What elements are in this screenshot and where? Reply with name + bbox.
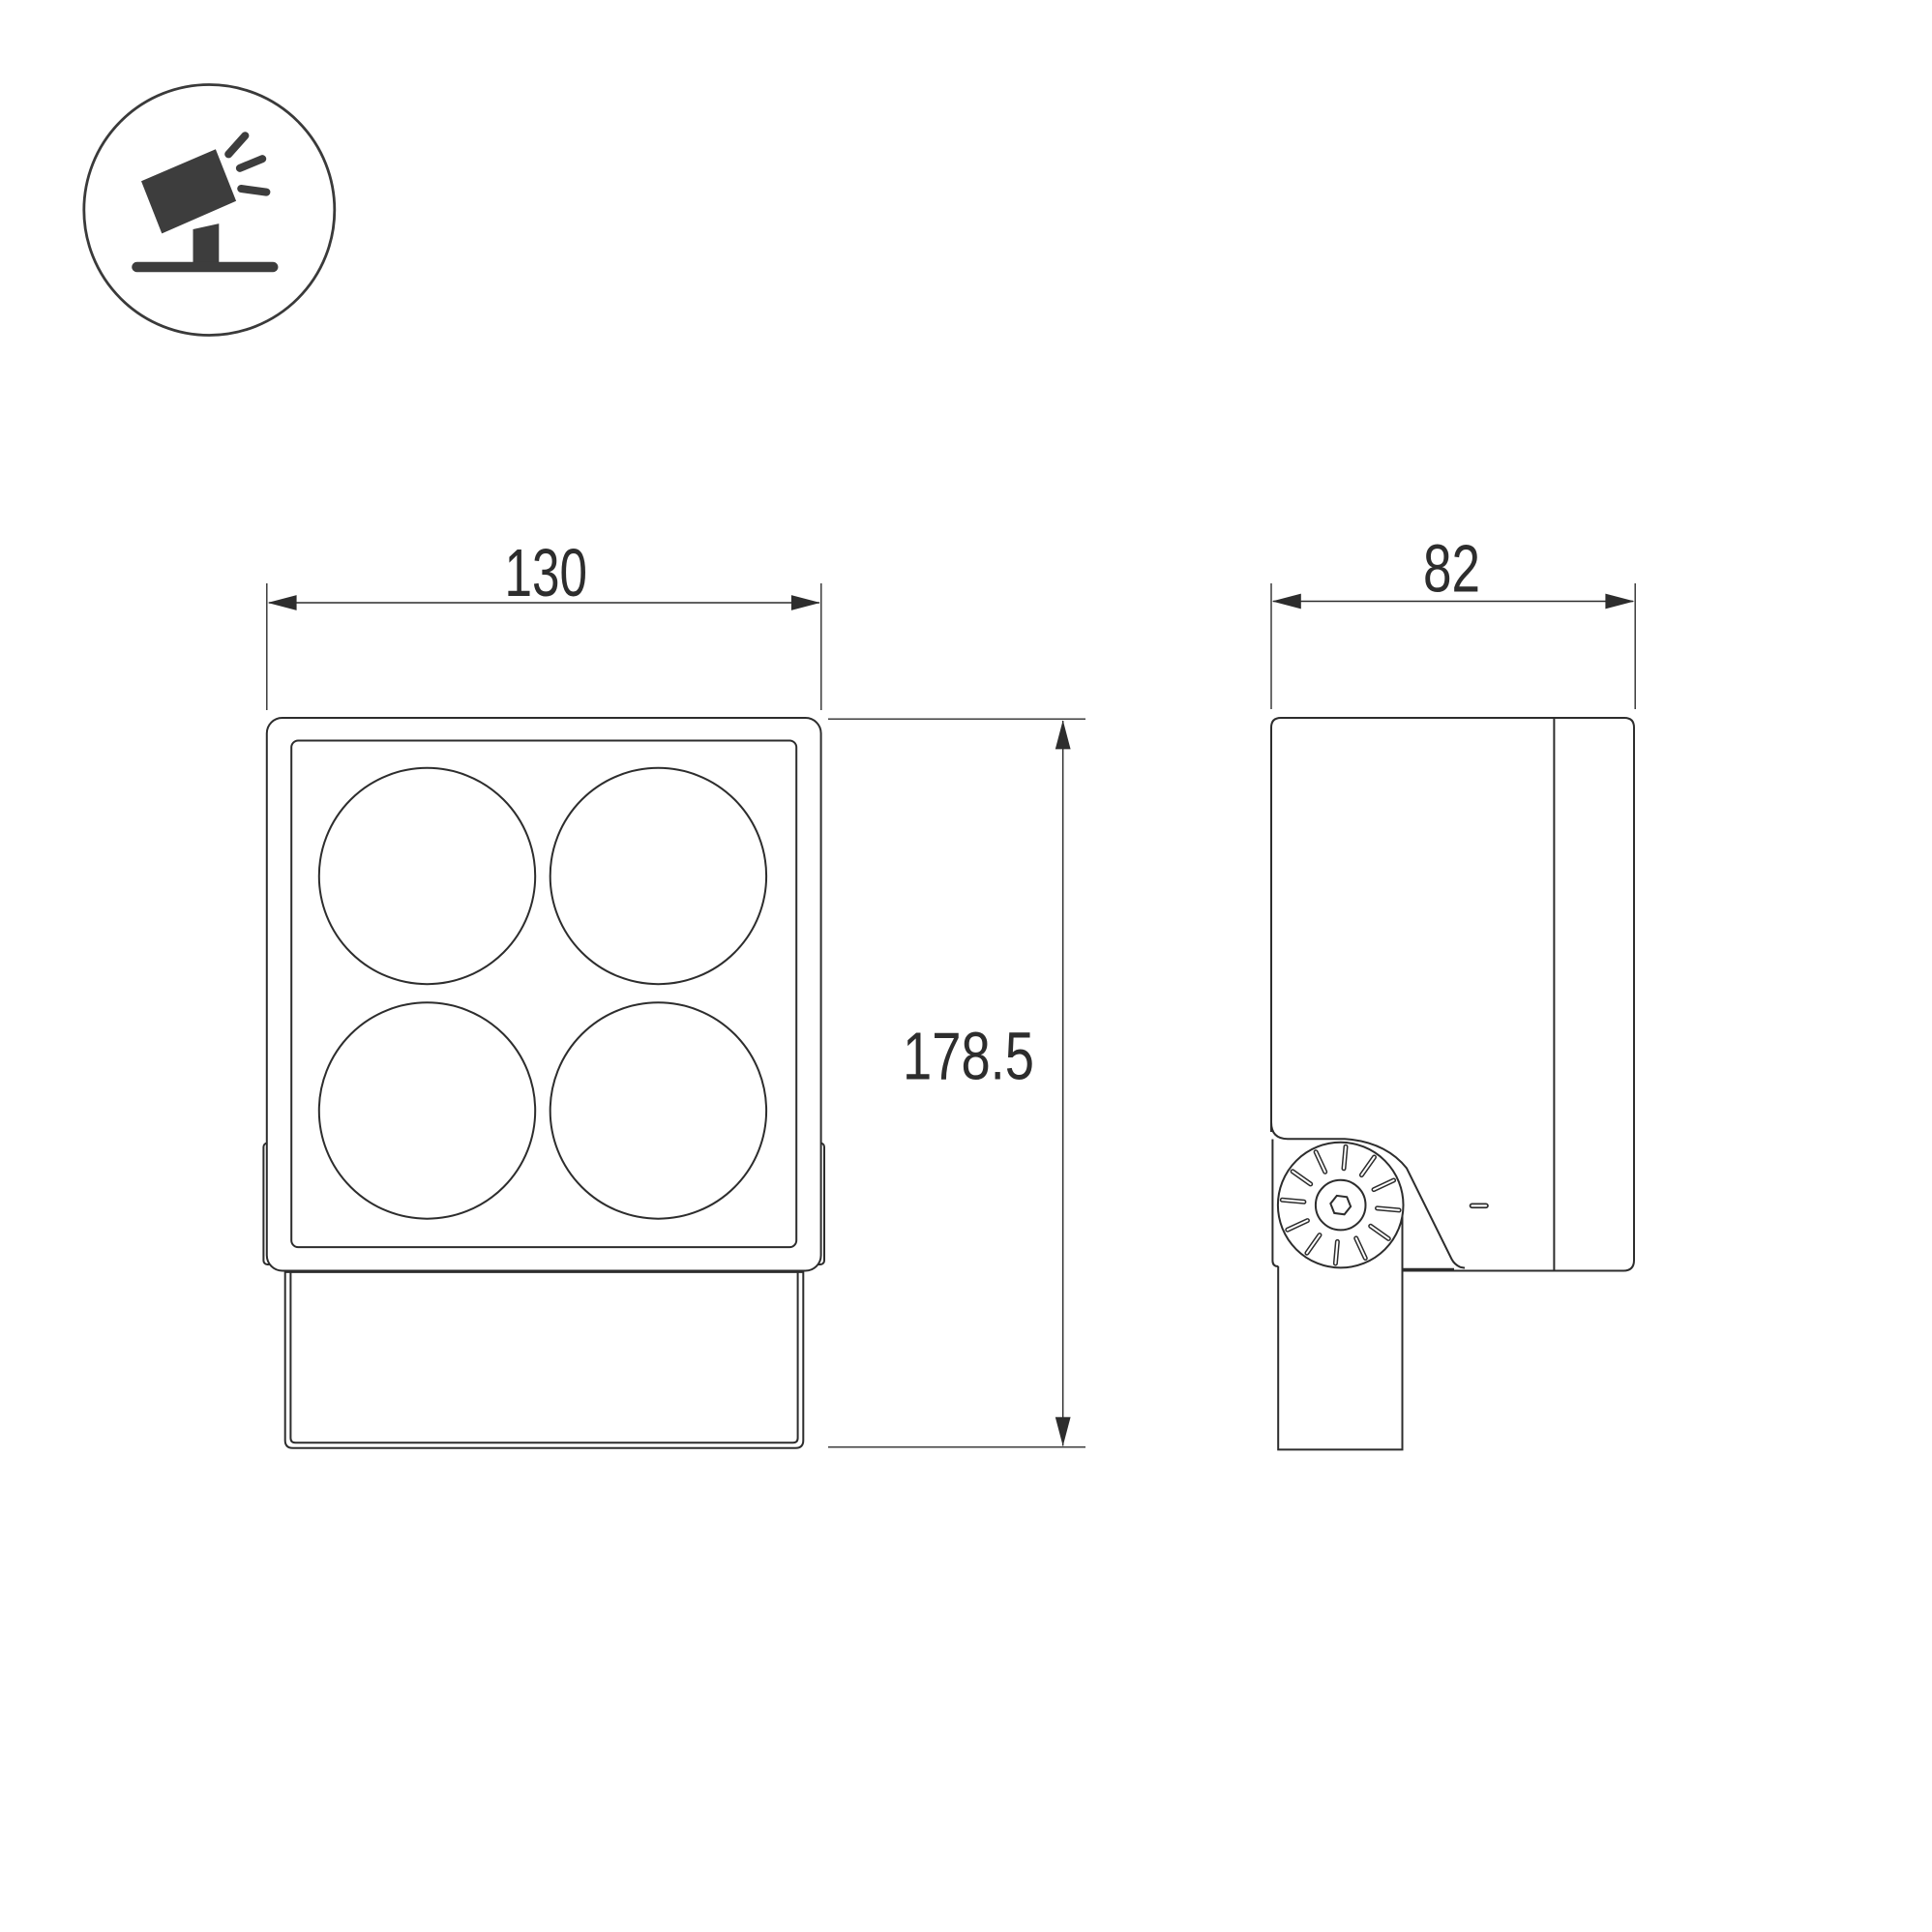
svg-text:82: 82 [1423, 531, 1480, 607]
svg-text:178.5: 178.5 [903, 1019, 1034, 1094]
svg-text:130: 130 [505, 535, 588, 610]
